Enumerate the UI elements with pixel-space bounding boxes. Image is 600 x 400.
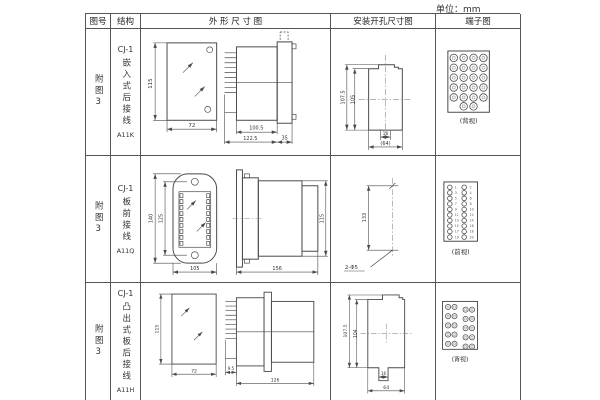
dim-pin-depth: 9.5 xyxy=(228,366,235,371)
dim-cutout-inner-height: 105 xyxy=(350,95,356,104)
row3-terminal-diagram: (背视) xyxy=(436,283,520,400)
dim-cutout-outer-height: 107.5 xyxy=(340,90,346,104)
svg-text:3: 3 xyxy=(455,191,457,195)
svg-text:1: 1 xyxy=(455,185,457,189)
svg-text:10: 10 xyxy=(470,208,474,212)
dim-total-depth: 126 xyxy=(271,378,280,384)
svg-text:8: 8 xyxy=(470,202,472,206)
row1-code: A11K xyxy=(117,131,134,139)
svg-text:4: 4 xyxy=(470,191,472,195)
row2-fig-cell: 附图3 xyxy=(86,156,111,283)
header-fig-no: 图号 xyxy=(86,14,111,29)
mirror-mark-icon xyxy=(195,87,205,97)
row1-model: CJ-1 xyxy=(118,45,134,54)
dim-body-depth: 100.5 xyxy=(249,126,263,132)
mirror-mark-icon xyxy=(183,63,193,73)
dim-cutout-width: (64) xyxy=(380,141,390,147)
row2-outline-drawing: 140 125 105 156 xyxy=(141,156,330,282)
row3-outline-cell: 115 72 9.5 126 xyxy=(141,283,331,400)
row2-model: CJ-1 xyxy=(118,184,134,193)
terminal-circles xyxy=(445,304,474,349)
row1-terminal-view-label: (背视) xyxy=(460,116,478,125)
row3-structure-cell: CJ-1 凸出式板后接线 A11H xyxy=(111,283,141,400)
row2-side-view: 156 115 xyxy=(233,170,328,275)
row3-model: CJ-1 xyxy=(118,289,134,298)
row3-fig-no: 附图3 xyxy=(94,324,103,360)
dim-hole-span: 16 xyxy=(383,131,389,137)
document-page: 单位：mm 图号 结构 外 形 尺 寸 图 安装开孔尺寸图 端子图 附图3 CJ… xyxy=(0,0,600,400)
row1-mounting-drawing: 107.5 105 16 (64) xyxy=(331,29,435,155)
dim-side-length: 156 xyxy=(272,266,281,272)
svg-text:2: 2 xyxy=(470,185,472,189)
row1-front-view: 115 72 xyxy=(148,43,216,132)
header-terminal: 端子图 xyxy=(436,14,521,29)
row2-structure-type: 板前接线 xyxy=(121,197,130,243)
svg-text:20: 20 xyxy=(470,235,474,239)
leader-line xyxy=(371,250,393,267)
row1-fig-cell: 附图3 xyxy=(86,29,111,156)
dim-inner-height: 125 xyxy=(159,214,165,223)
row2-terminal-cell: 135791113151719 2468101214161820 (前视) xyxy=(436,156,521,283)
row1-structure-cell: CJ-1 嵌入式后接线 A11K xyxy=(111,29,141,156)
dim-hole-distance: 133 xyxy=(362,213,368,222)
row2-terminal-view-label: (前视) xyxy=(452,247,470,256)
row3-fig-cell: 附图3 xyxy=(86,283,111,400)
dim-cutout-width: 64 xyxy=(383,385,389,391)
dim-front-width: 72 xyxy=(188,123,195,129)
row1-outline-drawing: 115 72 100.5 122.5 xyxy=(141,29,330,155)
mirror-mark-icon xyxy=(197,222,206,231)
svg-text:5: 5 xyxy=(455,197,457,201)
row3-outline-drawing: 115 72 9.5 126 xyxy=(141,283,330,400)
header-mounting: 安装开孔尺寸图 xyxy=(331,14,436,29)
svg-text:16: 16 xyxy=(470,224,474,228)
svg-text:9: 9 xyxy=(455,208,457,212)
hole-spec-label: 2-Φ5 xyxy=(345,265,358,271)
row2-outline-cell: 140 125 105 156 xyxy=(141,156,331,283)
svg-text:14: 14 xyxy=(470,219,474,223)
dim-cutout-outer-height: 107.5 xyxy=(343,324,349,337)
row1-outline-cell: 115 72 100.5 122.5 xyxy=(141,29,331,156)
dim-front-height: 115 xyxy=(155,325,161,334)
row1-terminal-diagram: (背视) xyxy=(436,29,520,155)
row1-side-view: 100.5 122.5 35 xyxy=(225,32,296,144)
mirror-mark-icon xyxy=(181,308,189,316)
row3-code: A11H xyxy=(117,386,135,394)
row3-terminal-view-label: (背视) xyxy=(452,355,469,363)
row3-structure-type: 凸出式板后接线 xyxy=(121,302,130,383)
svg-text:18: 18 xyxy=(470,230,474,234)
dim-cutout-inner-height: 104 xyxy=(352,329,358,338)
svg-text:15: 15 xyxy=(455,224,459,228)
dimension-table: 图号 结构 外 形 尺 寸 图 安装开孔尺寸图 端子图 附图3 CJ-1 嵌入式… xyxy=(85,13,520,400)
dim-flange-depth: 35 xyxy=(281,136,287,142)
row1-mounting-cell: 107.5 105 16 (64) xyxy=(331,29,436,156)
row2-mounting-drawing: 133 2-Φ5 xyxy=(331,156,435,282)
mirror-mark-icon xyxy=(187,201,196,210)
svg-text:13: 13 xyxy=(455,219,459,223)
svg-text:12: 12 xyxy=(470,213,474,217)
row3-mounting-drawing: 107.5 104 16 64 xyxy=(331,283,435,400)
row2-terminal-diagram: 135791113151719 2468101214161820 (前视) xyxy=(436,156,520,282)
svg-text:11: 11 xyxy=(455,213,459,217)
svg-text:7: 7 xyxy=(455,202,457,206)
dim-side-height: 115 xyxy=(319,214,325,223)
terminal-circles xyxy=(450,54,487,110)
dim-slot-width: 16 xyxy=(381,371,387,376)
screw-stub-dashed xyxy=(280,32,288,42)
row3-terminal-cell: (背视) xyxy=(436,283,521,400)
dim-front-height: 115 xyxy=(148,78,154,88)
row2-front-view: 140 125 105 xyxy=(149,174,217,275)
svg-text:17: 17 xyxy=(455,230,459,234)
row3-side-view: 9.5 126 xyxy=(225,292,313,386)
row2-code: A11Q xyxy=(117,247,135,255)
dim-front-height: 140 xyxy=(149,214,155,223)
terminal-column-right: 2468101214161820 xyxy=(462,185,474,239)
dim-front-width: 72 xyxy=(191,368,197,374)
svg-text:19: 19 xyxy=(455,235,459,239)
header-structure: 结构 xyxy=(111,14,141,29)
row1-structure-type: 嵌入式后接线 xyxy=(121,58,130,127)
dim-front-width: 105 xyxy=(190,266,199,272)
row1-terminal-cell: (背视) xyxy=(436,29,521,156)
terminal-column-left: 135791113151719 xyxy=(448,185,459,239)
row2-structure-cell: CJ-1 板前接线 A11Q xyxy=(111,156,141,283)
dim-total-depth: 122.5 xyxy=(243,136,257,142)
row1-fig-no: 附图3 xyxy=(94,74,103,110)
header-outline: 外 形 尺 寸 图 xyxy=(141,14,331,29)
svg-text:6: 6 xyxy=(470,197,472,201)
row3-front-view: 115 72 xyxy=(155,294,217,377)
mirror-mark-icon xyxy=(194,332,202,340)
row2-mounting-cell: 133 2-Φ5 xyxy=(331,156,436,283)
row2-fig-no: 附图3 xyxy=(94,201,103,237)
row3-mounting-cell: 107.5 104 16 64 xyxy=(331,283,436,400)
